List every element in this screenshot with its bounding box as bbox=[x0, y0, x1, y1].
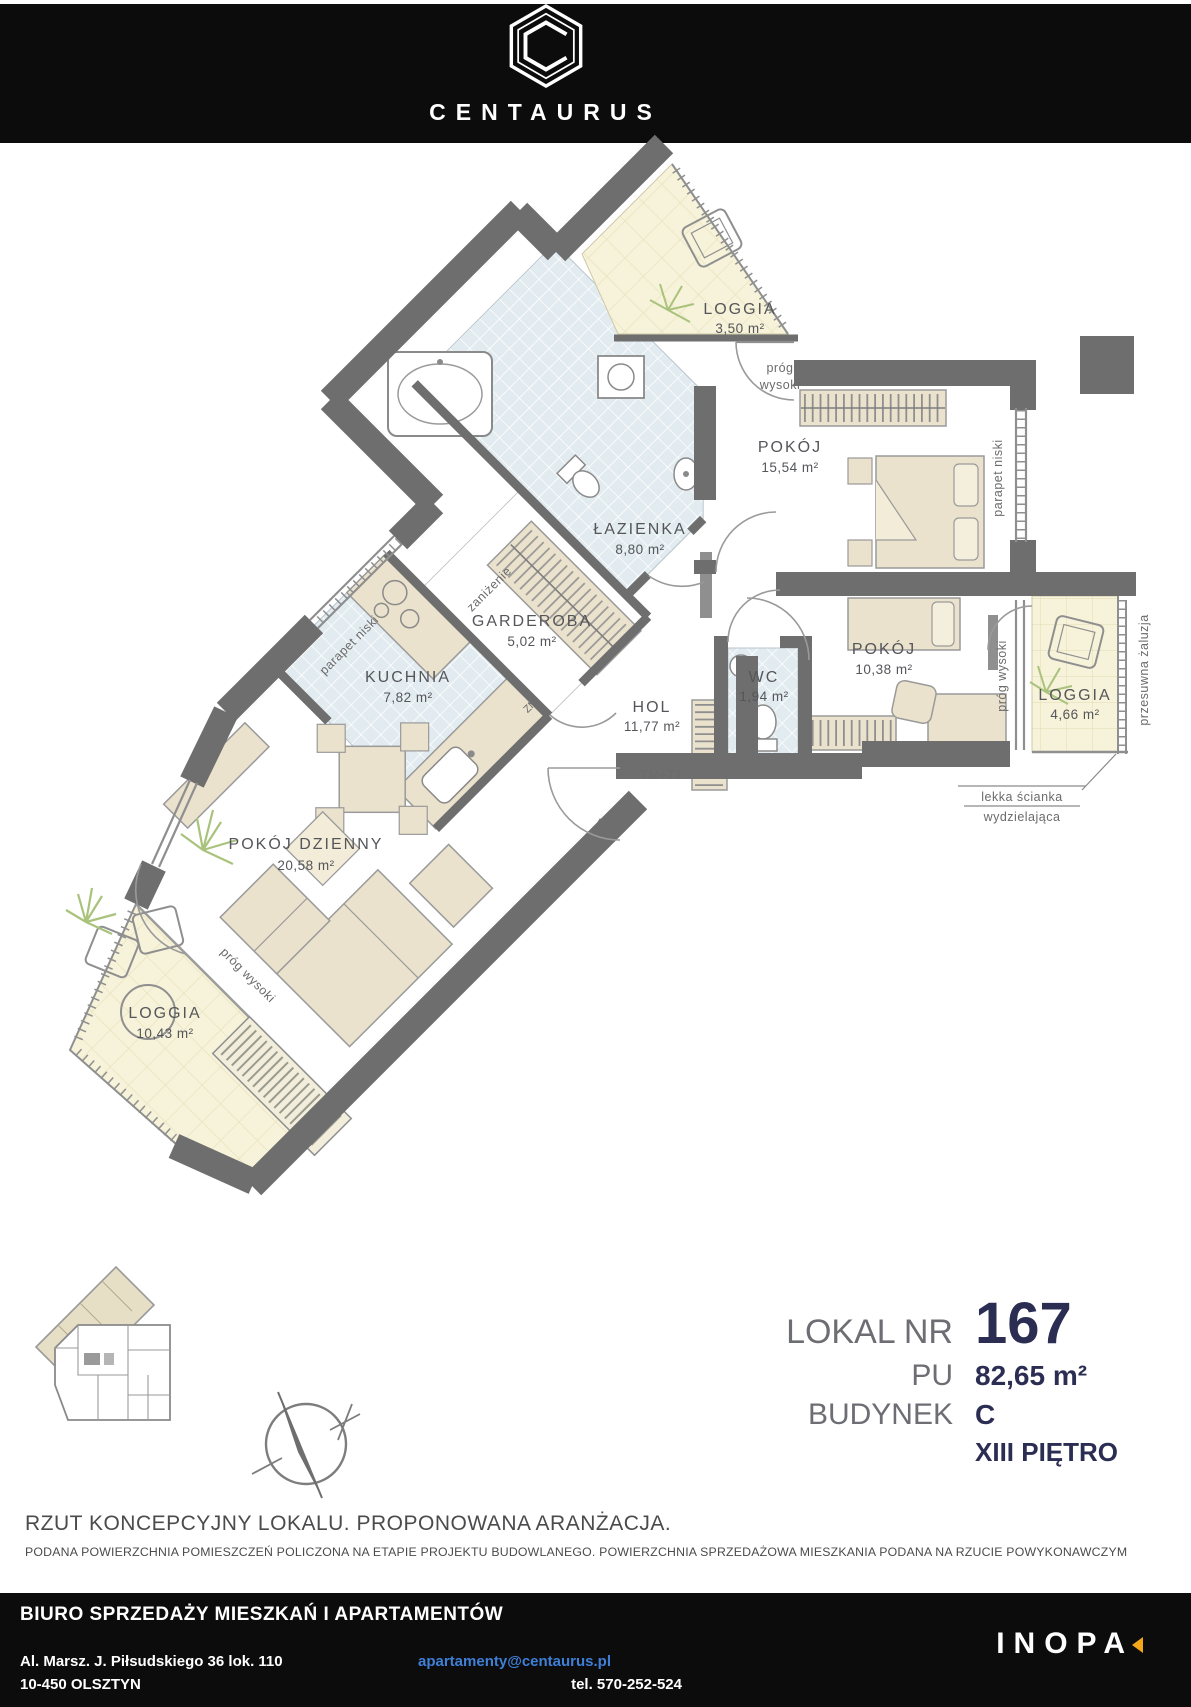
bedroom2-loggia-window bbox=[1016, 600, 1024, 750]
email-link[interactable]: apartamenty@centaurus.pl bbox=[418, 1653, 611, 1670]
address-line2: 10-450 OLSZTYN bbox=[20, 1676, 141, 1693]
room-area: 3,50 m² bbox=[715, 321, 764, 336]
unit-info-block: LOKAL NR 167 PU 82,65 m² BUDYNEK C XIII … bbox=[660, 1292, 1160, 1470]
room-label: GARDEROBA bbox=[472, 613, 592, 630]
pillow-icon bbox=[932, 602, 954, 646]
annotation-parapet-niski: parapet niski bbox=[991, 439, 1005, 516]
inopa-logo: INOPA bbox=[996, 1627, 1143, 1661]
lokal-label: LOKAL NR bbox=[660, 1313, 953, 1352]
pu-label: PU bbox=[660, 1359, 953, 1393]
plant-icon bbox=[66, 888, 116, 934]
loggia-right bbox=[1030, 596, 1128, 754]
pillow-icon bbox=[954, 518, 978, 560]
annotation-prog: próg bbox=[766, 361, 793, 375]
room-label: KUCHNIA bbox=[365, 669, 451, 686]
budynek-label: BUDYNEK bbox=[660, 1398, 953, 1432]
disclaimer-notes: RZUT KONCEPCYJNY LOKALU. PROPONOWANA ARA… bbox=[25, 1512, 1170, 1559]
inopa-triangle-icon bbox=[1132, 1637, 1143, 1653]
room-area: 15,54 m² bbox=[761, 460, 818, 475]
wardrobe-icon bbox=[800, 390, 946, 426]
pu-value: 82,65 m² bbox=[975, 1356, 1160, 1396]
notes-subtitle: PODANA POWIERZCHNIA POMIESZCZEŃ POLICZON… bbox=[25, 1545, 1170, 1559]
pillow-icon bbox=[954, 464, 978, 506]
room-area: 5,02 m² bbox=[507, 634, 556, 649]
compass-icon bbox=[252, 1392, 360, 1498]
annotation-przesuwna-zaluzja: przesuwna żaluzja bbox=[1137, 614, 1151, 725]
key-plan bbox=[36, 1267, 170, 1420]
lokal-number: 167 bbox=[975, 1292, 1160, 1356]
nightstand-icon bbox=[848, 540, 872, 566]
annotation-prog-wysoki: próg wysoki bbox=[995, 640, 1009, 712]
inopa-logo-text: INOPA bbox=[996, 1627, 1134, 1660]
room-label: LOGGIA bbox=[1038, 687, 1111, 704]
room-area: 20,58 m² bbox=[277, 858, 334, 873]
footer-bar: BIURO SPRZEDAŻY MIESZKAŃ I APARTAMENTÓW … bbox=[0, 1593, 1191, 1707]
budynek-value: C bbox=[975, 1396, 1160, 1434]
key-plan-building-outline bbox=[55, 1325, 170, 1420]
annotation-lekka-scianka: lekka ścianka bbox=[981, 790, 1063, 804]
notes-title: RZUT KONCEPCYJNY LOKALU. PROPONOWANA ARA… bbox=[25, 1512, 1170, 1536]
room-area: 10,43 m² bbox=[136, 1026, 193, 1041]
annotation-tm: TM+TT bbox=[640, 768, 683, 782]
room-area: 8,80 m² bbox=[615, 542, 664, 557]
room-area: 11,77 m² bbox=[624, 719, 680, 734]
room-area: 7,82 m² bbox=[383, 690, 432, 705]
room-label: POKÓJ bbox=[852, 639, 916, 658]
address-line1: Al. Marsz. J. Piłsudskiego 36 lok. 110 bbox=[20, 1653, 283, 1670]
room-area: 4,66 m² bbox=[1050, 707, 1099, 722]
room-label: WC bbox=[749, 669, 780, 686]
nightstand-icon bbox=[848, 458, 872, 484]
room-label: ŁAZIENKA bbox=[593, 521, 686, 538]
phone-number: tel. 570-252-524 bbox=[520, 1676, 682, 1693]
room-label: POKÓJ DZIENNY bbox=[229, 834, 384, 853]
sales-office-title: BIURO SPRZEDAŻY MIESZKAŃ I APARTAMENTÓW bbox=[20, 1604, 503, 1626]
room-label: HOL bbox=[633, 699, 672, 716]
pietro-value: XIII PIĘTRO bbox=[975, 1434, 1160, 1470]
annotation-wydzielajaca: wydzielająca bbox=[983, 810, 1061, 824]
structural-column bbox=[1080, 336, 1134, 394]
room-label: POKÓJ bbox=[758, 437, 822, 456]
annotation-wysoki: wysoki bbox=[759, 378, 801, 392]
room-area: 10,38 m² bbox=[855, 662, 912, 677]
washer-icon bbox=[598, 356, 644, 398]
room-label: LOGGIA bbox=[128, 1005, 201, 1022]
room-area: 1,94 m² bbox=[739, 689, 788, 704]
floor-plan-sheet: CENTAURUS bbox=[0, 0, 1191, 1707]
room-label: LOGGIA bbox=[703, 301, 776, 318]
chair-icon bbox=[890, 679, 937, 724]
